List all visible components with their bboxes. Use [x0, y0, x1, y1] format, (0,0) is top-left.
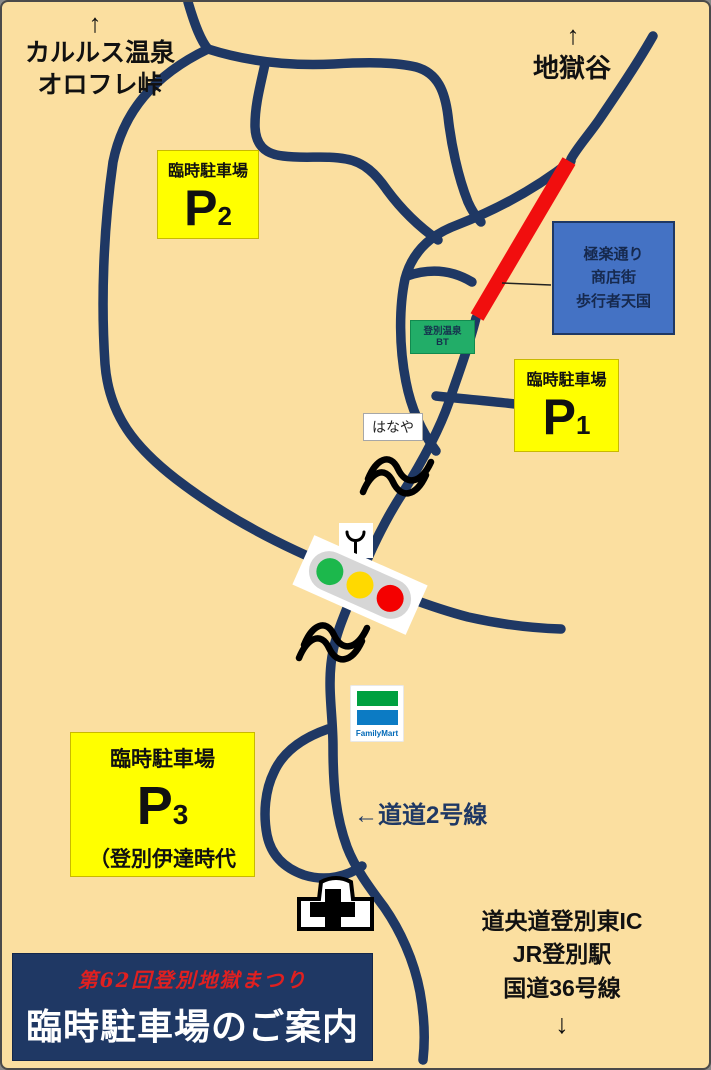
- parking-p1-id: P1: [543, 392, 591, 442]
- parking-p2-box: 臨時駐車場 P2: [157, 150, 259, 239]
- parking-p1-box: 臨時駐車場 P1: [514, 359, 619, 452]
- south-line-route36: 国道36号線: [452, 972, 672, 1005]
- road-bt-connector: [407, 271, 472, 282]
- parking-guide-map: ↑ カルルス温泉 オロフレ峠 ↑ 地獄谷 臨時駐車場 P2 極楽通り 商店街 歩…: [0, 0, 711, 1070]
- karurusu-direction-arrow: ↑: [80, 8, 110, 39]
- pedestrian-zone-line1: 極楽通り: [583, 243, 643, 266]
- parking-p3-id: P3: [137, 779, 189, 833]
- orofure-pass-label: オロフレ峠: [10, 70, 190, 101]
- bus-terminal-line1: 登別温泉: [423, 326, 461, 337]
- jigokudani-direction-arrow: ↑: [558, 20, 588, 51]
- familymart-label: FamilyMart: [356, 729, 398, 738]
- road-west: [103, 49, 561, 629]
- road-mid-loop: [255, 64, 438, 240]
- title-banner: 第62回登別地獄まつり 臨時駐車場のご案内: [12, 953, 373, 1061]
- parking-p3-note: （登別伊達時代: [89, 843, 236, 873]
- banner-title: 臨時駐車場のご案内: [26, 998, 359, 1050]
- parking-p3-title: 臨時駐車場: [110, 743, 215, 773]
- pedestrian-zone-line2: 商店街: [591, 266, 636, 289]
- pedestrian-zone-leader-line: [502, 283, 551, 285]
- familymart-blue-bar: [357, 710, 398, 725]
- south-line-station: JR登別駅: [452, 938, 672, 971]
- parking-p2-title: 臨時駐車場: [168, 157, 248, 181]
- parking-p1-title: 臨時駐車場: [526, 366, 606, 390]
- familymart-logo: FamilyMart: [350, 685, 404, 742]
- bus-terminal-box: 登別温泉 BT: [410, 320, 475, 354]
- pedestrian-zone-info-box: 極楽通り 商店街 歩行者天国: [552, 221, 675, 335]
- karurusu-onsen-label: カルルス温泉: [10, 38, 190, 69]
- south-directions-block: 道央道登別東IC JR登別駅 国道36号線 ↓: [452, 905, 672, 1044]
- south-direction-arrow: ↓: [452, 1005, 672, 1044]
- festival-name: 第62回登別地獄まつり: [78, 964, 308, 993]
- hanaya-shop-box: はなや: [363, 413, 423, 441]
- road-top-stub: [188, 2, 208, 49]
- familymart-green-bar: [357, 691, 398, 706]
- south-line-ic: 道央道登別東IC: [452, 905, 672, 938]
- pedestrian-zone-line3: 歩行者天国: [576, 290, 651, 313]
- hospital-icon: [299, 878, 372, 929]
- parking-p2-id: P2: [184, 183, 232, 233]
- prefectural-road-2-label: ←道道2号線: [354, 795, 487, 830]
- jigokudani-label: 地獄谷: [506, 52, 638, 85]
- parking-p3-box: 臨時駐車場 P3 （登別伊達時代: [70, 732, 255, 877]
- hanaya-shop-label: はなや: [372, 417, 414, 437]
- bus-terminal-line2: BT: [436, 337, 449, 348]
